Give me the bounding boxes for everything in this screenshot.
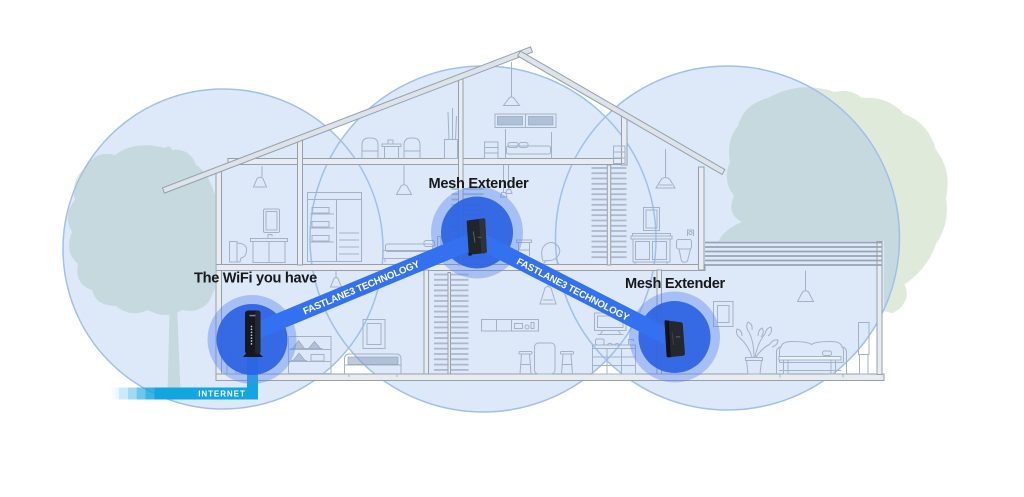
svg-text:Mesh Extender: Mesh Extender xyxy=(625,276,726,292)
svg-text:Mesh Extender: Mesh Extender xyxy=(429,176,530,192)
svg-text:The WiFi you have: The WiFi you have xyxy=(194,270,317,286)
svg-text:INTERNET: INTERNET xyxy=(198,390,246,399)
